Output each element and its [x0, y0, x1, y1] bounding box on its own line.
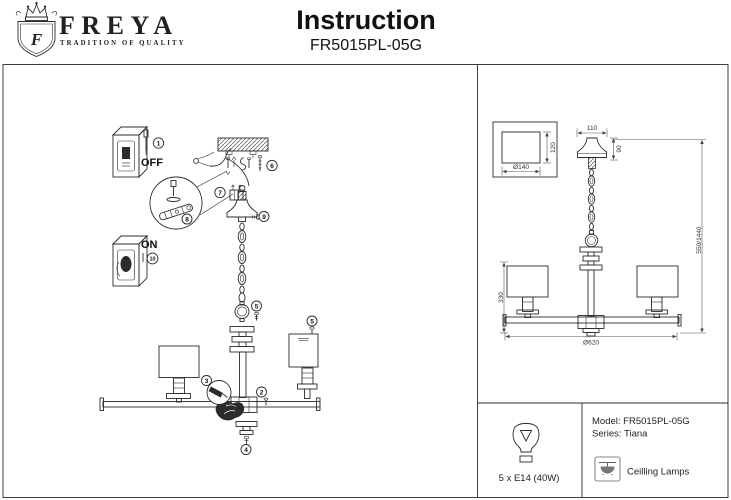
category-label: Ceilling Lamps — [627, 467, 690, 478]
ring-screw — [254, 312, 258, 320]
mounting-hardware: 6 — [226, 155, 277, 174]
tighten-detail-magnifier: 3 — [202, 376, 232, 405]
step-5-number: 5 — [255, 303, 259, 310]
logo-letter: F — [30, 30, 43, 49]
chain-front-view — [585, 169, 597, 246]
stem-body — [230, 327, 254, 398]
shade-screw — [310, 327, 314, 334]
bulb-count-label: 5 x E14 (40W) — [499, 473, 560, 484]
dim-hanging-height: 550/1440 — [696, 226, 703, 253]
front-right-shade — [637, 266, 678, 318]
canopy-front-view: 110 90 — [577, 125, 623, 247]
model-label: Model: FR5015PL-05G — [592, 416, 690, 427]
step-9-number: 9 — [262, 214, 266, 221]
canopy-plan-view: Ø140 120 — [493, 122, 557, 177]
mount-detail-magnifier: 8 — [150, 171, 233, 229]
brand-tagline: TRADITION OF QUALITY — [60, 40, 186, 47]
on-label: ON — [141, 239, 158, 251]
step-8-number: 8 — [185, 216, 189, 223]
chandelier-front-view: 330 Ø620 550/1440 — [498, 140, 706, 347]
sheet-canvas: F FREYA TRADITION OF QUALITY Instruction… — [0, 0, 731, 500]
brand-logo: F FREYA TRADITION OF QUALITY — [16, 2, 185, 57]
brand-name: FREYA — [59, 11, 179, 40]
step-2-number: 2 — [260, 389, 264, 396]
dim-total-diameter: Ø620 — [583, 340, 599, 347]
step-7-number: 7 — [218, 190, 222, 197]
hanging-chain: 5 — [235, 223, 262, 322]
bulb-icon — [513, 423, 539, 462]
off-label: OFF — [141, 157, 163, 169]
page-title: Instruction — [296, 5, 436, 35]
hub-screw: 2 — [257, 387, 268, 406]
page-model-code: FR5015PL-05G — [310, 37, 422, 54]
step-1-number: 1 — [157, 140, 161, 147]
step-3-number: 3 — [205, 378, 209, 385]
step-6-number: 6 — [270, 163, 274, 170]
front-left-shade — [507, 266, 548, 318]
ceiling-lamp-icon — [595, 457, 620, 481]
bottom-finial: 4 — [236, 422, 257, 455]
step-5b-number: 5 — [310, 318, 314, 325]
ceiling-mount — [218, 138, 268, 158]
dim-canopy-width: 110 — [587, 125, 598, 132]
step-10-number: 10 — [149, 257, 155, 263]
canopy: 9 — [227, 186, 269, 222]
step-4-number: 4 — [244, 447, 248, 454]
dim-canopy-plan-side: 120 — [550, 142, 557, 153]
dim-canopy-height: 90 — [616, 145, 623, 153]
off-switch-illustration: OFF 1 — [113, 127, 164, 177]
dim-body-height: 330 — [498, 292, 505, 303]
right-shade-assembly: 5 — [289, 316, 318, 399]
crown-icon — [16, 2, 57, 21]
spec-table: 5 x E14 (40W) Model: FR5015PL-05G Series… — [499, 416, 690, 484]
instruction-sheet: F FREYA TRADITION OF QUALITY Instruction… — [0, 0, 731, 500]
shield-icon: F — [18, 22, 55, 57]
series-label: Series: Tiana — [592, 429, 648, 440]
canopy-screw — [251, 215, 259, 220]
left-shade-assembly — [159, 346, 199, 402]
on-switch-illustration: ON 10 — [113, 236, 158, 286]
dim-canopy-plan-diameter: Ø140 — [513, 164, 529, 171]
